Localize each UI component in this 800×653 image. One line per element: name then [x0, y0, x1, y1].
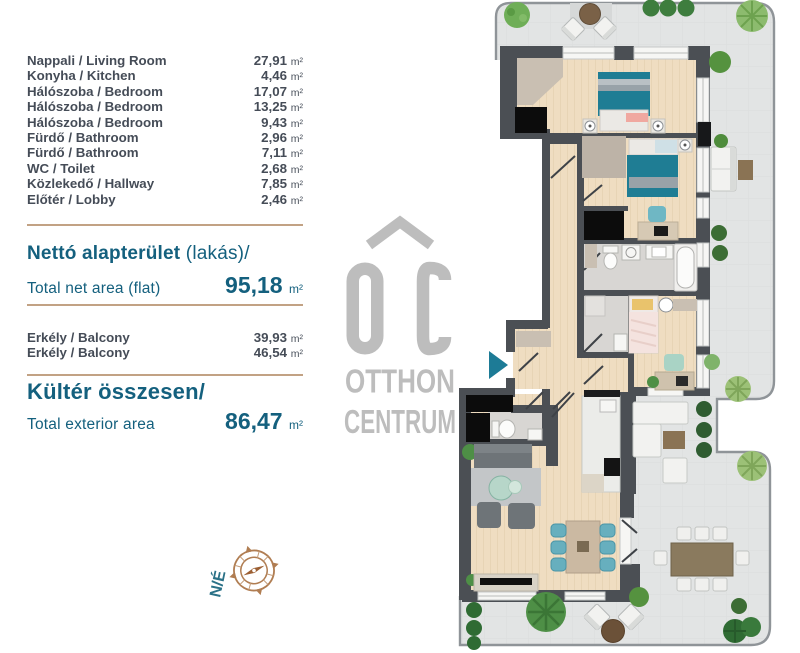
svg-text:CENTRUM: CENTRUM: [344, 403, 456, 440]
svg-text:OTTHON: OTTHON: [345, 364, 455, 401]
svg-text:N/É: N/É: [205, 568, 229, 598]
